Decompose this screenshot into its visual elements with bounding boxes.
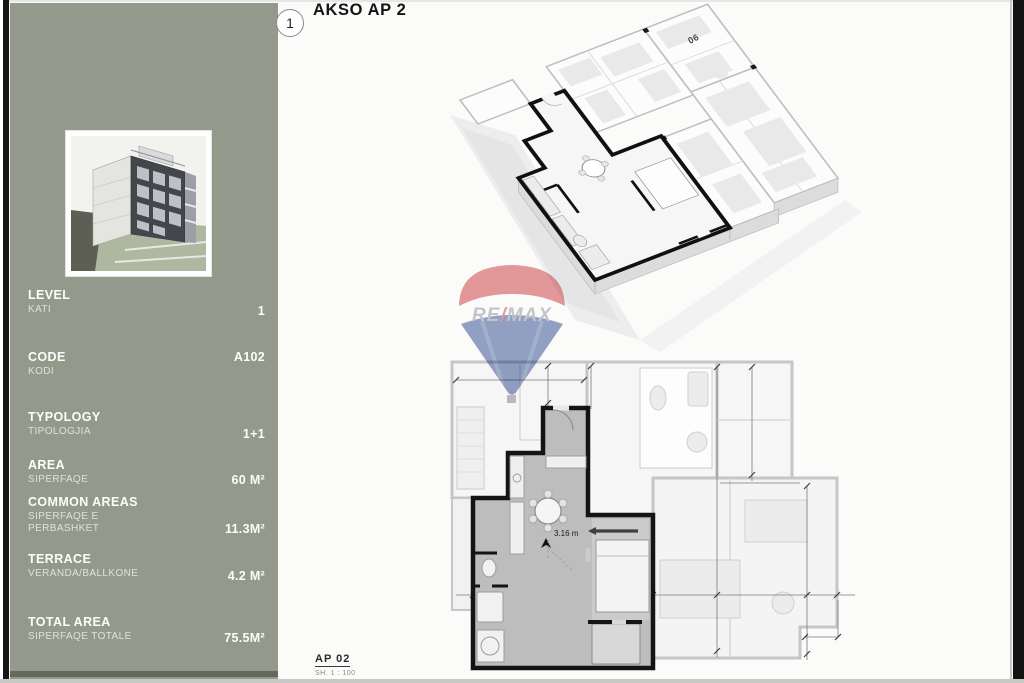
remax-wordmark: RE/MAX xyxy=(472,305,552,326)
floor-plan-canvas: 06 xyxy=(0,0,1024,683)
plan-balcony xyxy=(592,624,640,664)
plan-neighbor-balcony xyxy=(457,407,484,489)
sheet-scale: SH. 1 : 100 xyxy=(315,670,356,677)
plan-dimension-label: 3.16 m xyxy=(554,529,579,538)
plan-dining-table xyxy=(535,498,561,524)
plan-2d: 3.16 m xyxy=(452,362,855,668)
floor-plan-sheet: LEVEL KATI 1 CODE KODI A102 TYPOLOGY TIP… xyxy=(0,0,1024,683)
plan-bed xyxy=(596,540,649,612)
sheet-code: AP 02 xyxy=(315,653,350,667)
balloon-basket xyxy=(507,395,516,403)
page-bottom-edge xyxy=(0,679,1024,683)
sheet-label-block: AP 02 SH. 1 : 100 xyxy=(315,649,356,677)
